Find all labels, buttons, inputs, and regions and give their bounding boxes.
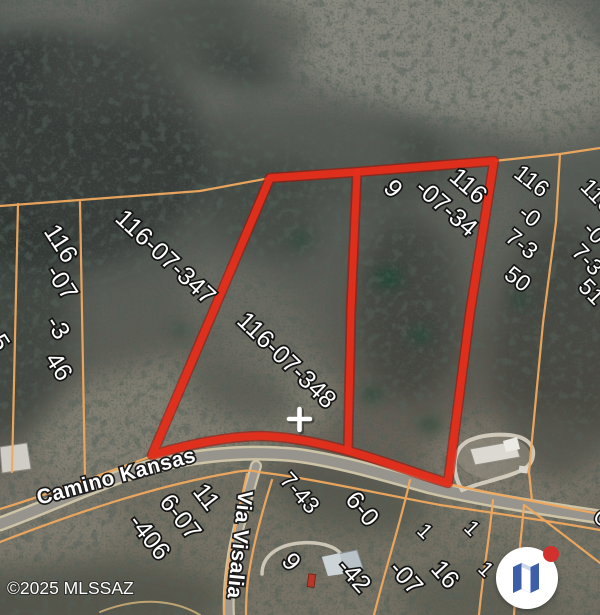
red-car	[307, 574, 316, 588]
terrain	[0, 0, 600, 615]
attribution-text: ©2025 MLSSAZ	[7, 578, 134, 598]
map-canvas[interactable]: 116-07-347 116-07-348 116 -07 -3 46 116 …	[0, 0, 600, 615]
terrain-speckle-fine	[0, 0, 600, 615]
satellite-parcel-map[interactable]: 116-07-347 116-07-348 116 -07 -3 46 116 …	[0, 0, 600, 615]
shed-east	[519, 466, 529, 474]
folded-map-icon	[513, 563, 539, 593]
house-west	[0, 443, 31, 473]
logo-notification-dot	[543, 546, 559, 562]
